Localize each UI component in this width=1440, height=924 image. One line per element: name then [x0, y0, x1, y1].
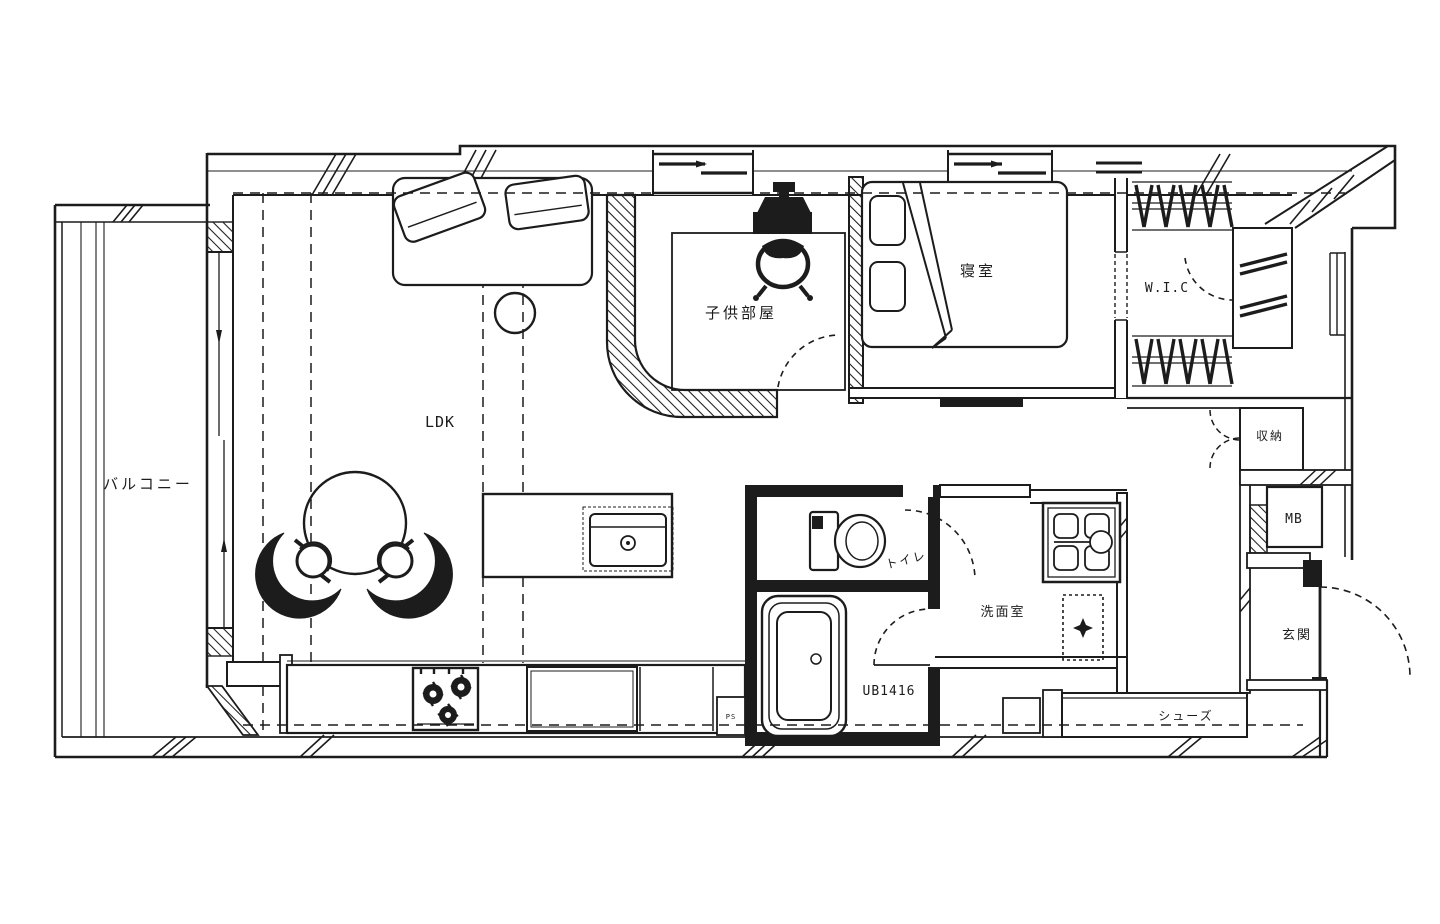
balcony-window: [216, 252, 227, 628]
window-kids-room: [653, 150, 753, 196]
sofa: [391, 170, 592, 285]
bath-door: [874, 609, 930, 665]
wall-bedroom-wic: [1114, 178, 1127, 398]
shoe-rack-label: シューズ: [1158, 708, 1213, 723]
bathtub: [762, 596, 846, 736]
dining-chair-right: [367, 533, 452, 618]
washing-machine: [1043, 503, 1120, 582]
toilet-fixture: [810, 512, 885, 570]
bedroom-label: 寝室: [960, 262, 996, 280]
room-labels: バルコニー LDK 子供部屋 寝室 W.I.C 収納 MB トイレ 洗面室 UB…: [103, 262, 1312, 723]
kids-desk-chair: [753, 182, 813, 301]
kitchen-counter: [287, 661, 745, 733]
side-table: [495, 293, 535, 333]
entrance-label: 玄関: [1282, 628, 1312, 643]
storage-label: 収納: [1256, 429, 1284, 443]
ldk-label: LDK: [425, 413, 455, 431]
unit-bath-label: UB1416: [863, 684, 916, 699]
kids-room-label: 子供部屋: [705, 304, 777, 322]
washroom-label: 洗面室: [980, 604, 1025, 620]
hatch-balcony-top: [113, 205, 143, 222]
ps-label: PS: [726, 713, 736, 721]
wall-wic-south: [1127, 398, 1352, 408]
ldk-corner-walls: [207, 655, 292, 735]
dining-set: [256, 472, 453, 618]
stove: [413, 668, 478, 730]
balcony-label: バルコニー: [103, 475, 193, 493]
kids-room-furniture: [672, 182, 845, 390]
kids-door-arc: [777, 335, 840, 398]
toilet-label: トイレ: [884, 548, 928, 572]
window-wic: [1096, 163, 1142, 172]
hatch-left-wall: [207, 222, 233, 656]
mb-label: MB: [1285, 512, 1303, 527]
entrance-walls: [1247, 553, 1410, 757]
floorplan-svg: PS: [0, 0, 1440, 924]
pipe-space: PS: [717, 697, 745, 735]
dining-chair-left: [256, 533, 341, 618]
wic-label: W.I.C: [1145, 281, 1189, 296]
kitchen-island: [483, 494, 673, 577]
floorplan-page: PS: [0, 0, 1440, 924]
shoe-cabinet: [1043, 690, 1247, 737]
vanity: [1063, 595, 1103, 660]
wall-bedroom-south: [849, 388, 1127, 407]
